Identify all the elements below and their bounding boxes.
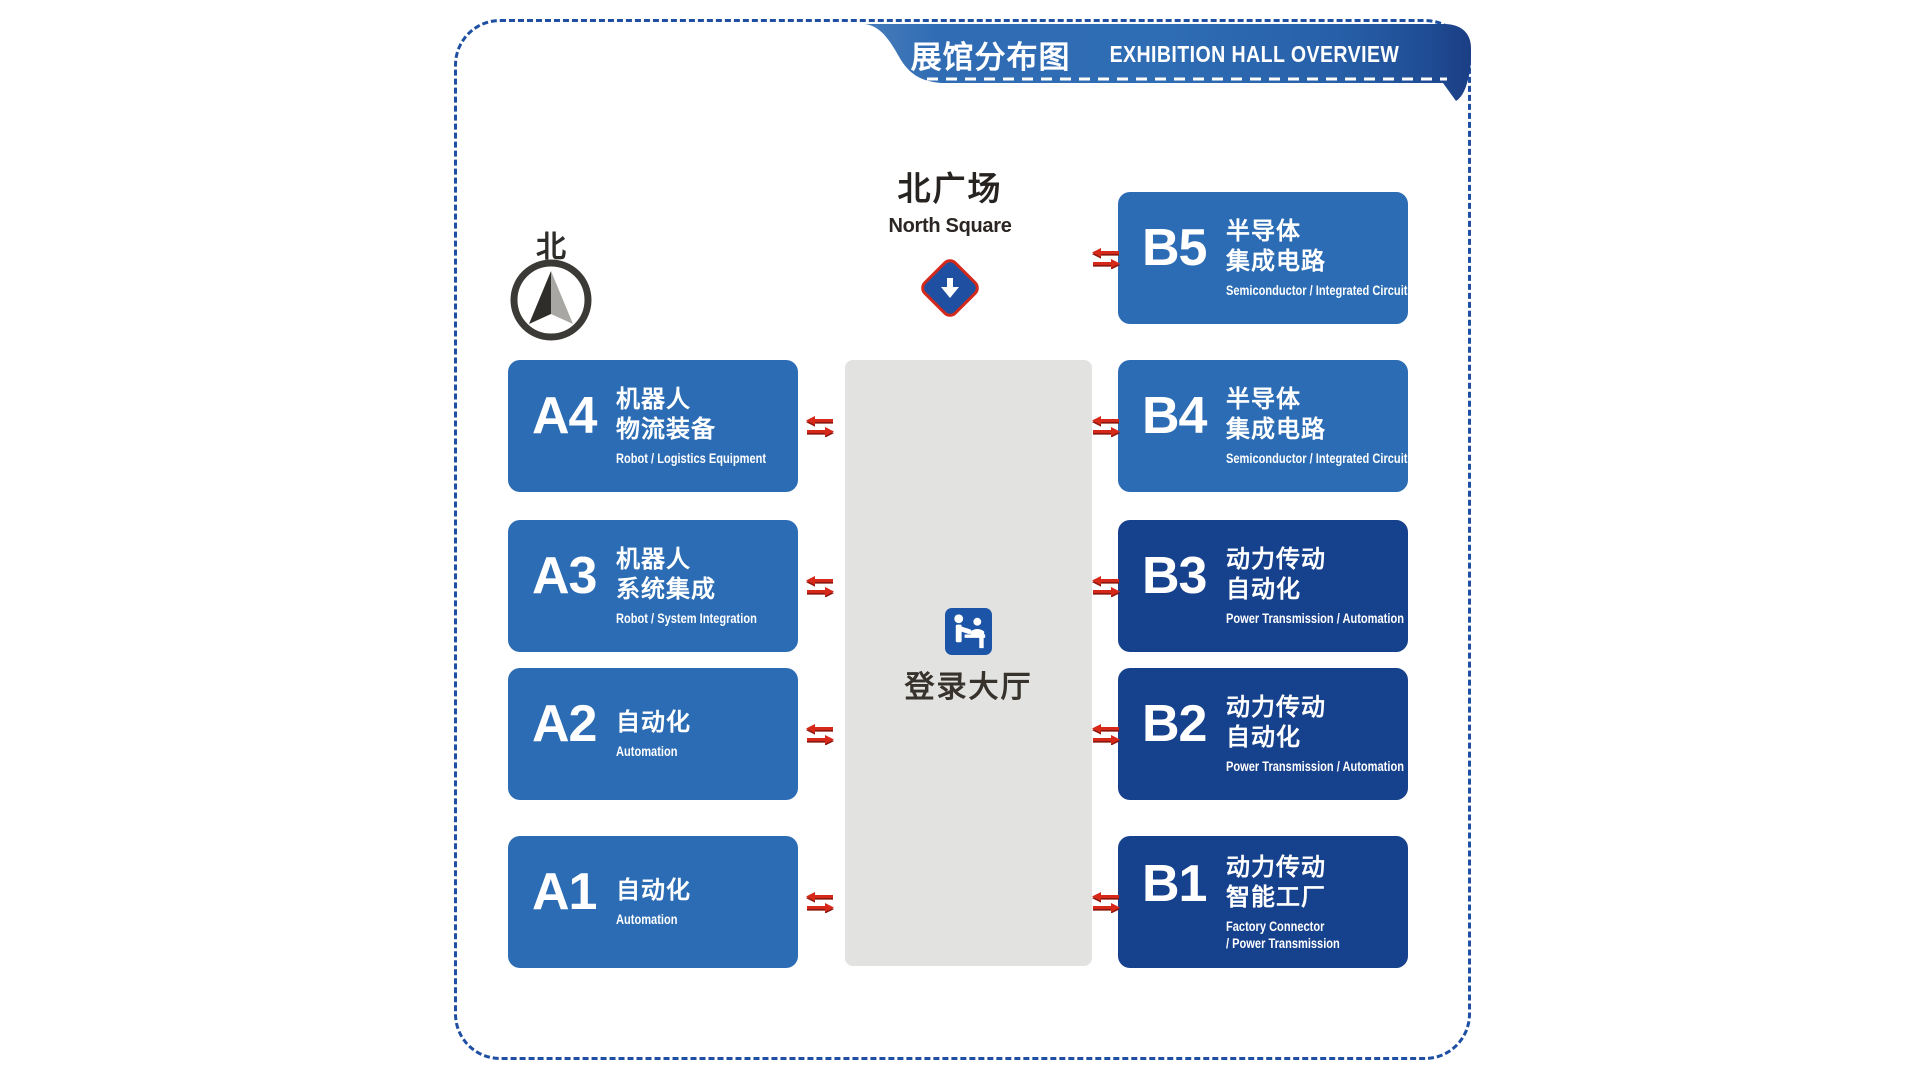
hall-description: 动力传动 自动化 Power Transmission / Automation bbox=[1226, 545, 1443, 627]
hall-description: 半导体 集成电路 Semiconductor / Integrated Circ… bbox=[1226, 217, 1455, 299]
entrance-direction-marker bbox=[918, 256, 983, 321]
hall-code: A4 bbox=[532, 386, 606, 446]
transfer-arrows-icon bbox=[1092, 892, 1120, 913]
north-square-cn: 北广场 bbox=[840, 162, 1060, 210]
page-title-cn: 展馆分布图 bbox=[911, 32, 1071, 77]
transfer-arrows-icon bbox=[806, 724, 834, 745]
hall-description: 机器人 物流装备 Robot / Logistics Equipment bbox=[616, 385, 799, 467]
hall-code: B4 bbox=[1142, 386, 1216, 446]
hall-description: 动力传动 自动化 Power Transmission / Automation bbox=[1226, 693, 1443, 775]
page-title: 展馆分布图 EXHIBITION HALL OVERVIEW bbox=[880, 24, 1455, 84]
registration-desk-icon bbox=[945, 608, 992, 660]
hall-code: A2 bbox=[532, 694, 606, 754]
hall-description: 自动化 Automation bbox=[616, 876, 691, 928]
hall-block-b2: B2 动力传动 自动化 Power Transmission / Automat… bbox=[1118, 668, 1408, 800]
hall-code: B5 bbox=[1142, 218, 1216, 278]
transfer-arrows-icon bbox=[806, 416, 834, 437]
transfer-arrows-icon bbox=[1092, 248, 1120, 269]
transfer-arrows-icon bbox=[1092, 724, 1120, 745]
hall-code: B1 bbox=[1142, 854, 1216, 914]
hall-block-a1: A1 自动化 Automation bbox=[508, 836, 798, 968]
hall-block-a3: A3 机器人 系统集成 Robot / System Integration bbox=[508, 520, 798, 652]
transfer-arrows-icon bbox=[806, 576, 834, 597]
hall-description: 动力传动 智能工厂 Factory Connector / Power Tran… bbox=[1226, 853, 1365, 952]
hall-block-b4: B4 半导体 集成电路 Semiconductor / Integrated C… bbox=[1118, 360, 1408, 492]
hall-code: A1 bbox=[532, 862, 606, 922]
north-square-en: North Square bbox=[840, 215, 1060, 238]
transfer-arrows-icon bbox=[806, 892, 834, 913]
hall-description: 自动化 Automation bbox=[616, 708, 691, 760]
transfer-arrows-icon bbox=[1092, 576, 1120, 597]
page-title-en: EXHIBITION HALL OVERVIEW bbox=[1109, 41, 1399, 68]
hall-block-a2: A2 自动化 Automation bbox=[508, 668, 798, 800]
north-square-label: 北广场 North Square bbox=[840, 162, 1060, 238]
hall-block-a4: A4 机器人 物流装备 Robot / Logistics Equipment bbox=[508, 360, 798, 492]
hall-description: 机器人 系统集成 Robot / System Integration bbox=[616, 545, 788, 627]
hall-block-b3: B3 动力传动 自动化 Power Transmission / Automat… bbox=[1118, 520, 1408, 652]
transfer-arrows-icon bbox=[1092, 416, 1120, 437]
hall-block-b5: B5 半导体 集成电路 Semiconductor / Integrated C… bbox=[1118, 192, 1408, 324]
hall-code: B3 bbox=[1142, 546, 1216, 606]
registration-hall-label: 登录大厅 bbox=[845, 662, 1092, 706]
hall-block-b1: B1 动力传动 智能工厂 Factory Connector / Power T… bbox=[1118, 836, 1408, 968]
down-arrow-icon bbox=[917, 255, 982, 320]
compass-icon bbox=[509, 258, 593, 342]
hall-code: A3 bbox=[532, 546, 606, 606]
hall-code: B2 bbox=[1142, 694, 1216, 754]
hall-description: 半导体 集成电路 Semiconductor / Integrated Circ… bbox=[1226, 385, 1455, 467]
